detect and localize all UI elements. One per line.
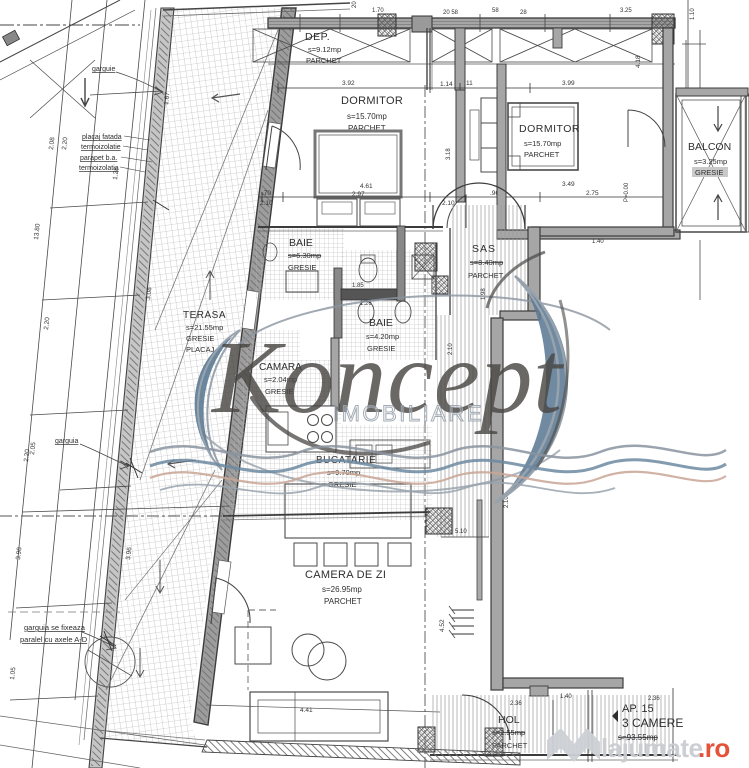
svg-text:s=3.25mp: s=3.25mp (694, 157, 727, 166)
svg-text:s=9.12mp: s=9.12mp (308, 45, 341, 54)
svg-text:3.98: 3.98 (15, 547, 23, 561)
svg-text:.ro: .ro (698, 733, 730, 763)
svg-text:GRESIE: GRESIE (695, 168, 723, 177)
svg-text:28: 28 (520, 10, 527, 16)
svg-text:GRESIE: GRESIE (186, 334, 214, 343)
svg-text:3.18: 3.18 (446, 148, 452, 160)
svg-text:1.28: 1.28 (112, 167, 120, 181)
svg-text:2.75: 2.75 (586, 190, 599, 197)
svg-text:4.18: 4.18 (635, 55, 642, 68)
svg-text:s=6.30mp: s=6.30mp (288, 251, 321, 260)
svg-text:1.67: 1.67 (163, 92, 171, 106)
svg-text:SAS: SAS (472, 243, 496, 255)
svg-text:4.61: 4.61 (360, 183, 373, 190)
svg-text:2.97: 2.97 (352, 191, 365, 198)
svg-text:3 CAMERE: 3 CAMERE (622, 716, 683, 730)
svg-text:5.10: 5.10 (455, 529, 467, 535)
svg-text:DORMITOR: DORMITOR (341, 95, 403, 107)
svg-text:placaj fatada: placaj fatada (82, 134, 122, 141)
svg-text:PARCHET: PARCHET (524, 150, 560, 159)
svg-text:IMOBILIARE: IMOBILIARE (333, 401, 484, 426)
svg-text:2.20: 2.20 (23, 449, 31, 463)
svg-text:P=0.00: P=0.00 (624, 182, 630, 202)
svg-text:3.96: 3.96 (125, 547, 133, 561)
svg-text:3.49: 3.49 (562, 181, 575, 188)
svg-text:garguia se fixeaza: garguia se fixeaza (24, 623, 86, 632)
svg-text:s=8.40mp: s=8.40mp (470, 258, 503, 267)
svg-text:garguie: garguie (92, 66, 115, 73)
svg-text:58: 58 (492, 8, 499, 14)
svg-text:s=15.70mp: s=15.70mp (347, 112, 387, 121)
svg-text:1.40: 1.40 (592, 239, 604, 245)
svg-text:4.52: 4.52 (439, 619, 446, 632)
svg-text:AP. 15: AP. 15 (622, 703, 654, 715)
svg-text:2.36: 2.36 (510, 701, 522, 707)
svg-text:11: 11 (466, 80, 473, 87)
svg-text:2.10: 2.10 (260, 200, 273, 207)
svg-text:parapet b.a.: parapet b.a. (80, 155, 117, 162)
svg-text:s=26.95mp: s=26.95mp (322, 585, 362, 594)
svg-text:1.85: 1.85 (352, 283, 364, 289)
svg-text:3.92: 3.92 (342, 80, 355, 87)
svg-text:3.25: 3.25 (620, 8, 632, 14)
svg-text:garguia: garguia (55, 438, 78, 445)
svg-text:1.70: 1.70 (372, 8, 384, 14)
svg-text:3.08: 3.08 (145, 287, 153, 301)
svg-text:20: 20 (352, 1, 358, 8)
svg-text:PLACAJ: PLACAJ (186, 345, 215, 354)
svg-text:.70: .70 (262, 190, 271, 197)
svg-text:2.36: 2.36 (648, 696, 660, 702)
svg-text:1.05: 1.05 (9, 667, 17, 681)
svg-text:2.08: 2.08 (48, 137, 56, 151)
svg-text:2.20: 2.20 (61, 137, 69, 151)
svg-text:DORMITOR: DORMITOR (519, 123, 580, 135)
svg-text:termoizolatie: termoizolatie (81, 144, 121, 151)
svg-text:1.40: 1.40 (560, 694, 572, 700)
svg-text:1.98: 1.98 (481, 288, 487, 300)
svg-text:s=15.70mp: s=15.70mp (524, 139, 561, 148)
svg-text:1.14: 1.14 (440, 81, 453, 88)
svg-text:lajumate: lajumate (601, 733, 703, 763)
svg-text:2.20: 2.20 (43, 317, 51, 331)
svg-text:paralel cu axele A-D: paralel cu axele A-D (20, 635, 88, 644)
svg-text:3.99: 3.99 (562, 80, 575, 87)
svg-text:HOL: HOL (498, 714, 520, 726)
svg-text:1.10: 1.10 (690, 8, 696, 20)
svg-text:20 58: 20 58 (443, 10, 459, 16)
svg-text:PARCHET: PARCHET (324, 597, 362, 606)
svg-text:DEP.: DEP. (305, 31, 330, 43)
svg-text:PARCHET: PARCHET (468, 271, 504, 280)
svg-text:BALCON: BALCON (688, 141, 731, 153)
svg-text:BAIE: BAIE (289, 237, 313, 249)
svg-text:CAMERA DE ZI: CAMERA DE ZI (305, 569, 386, 581)
